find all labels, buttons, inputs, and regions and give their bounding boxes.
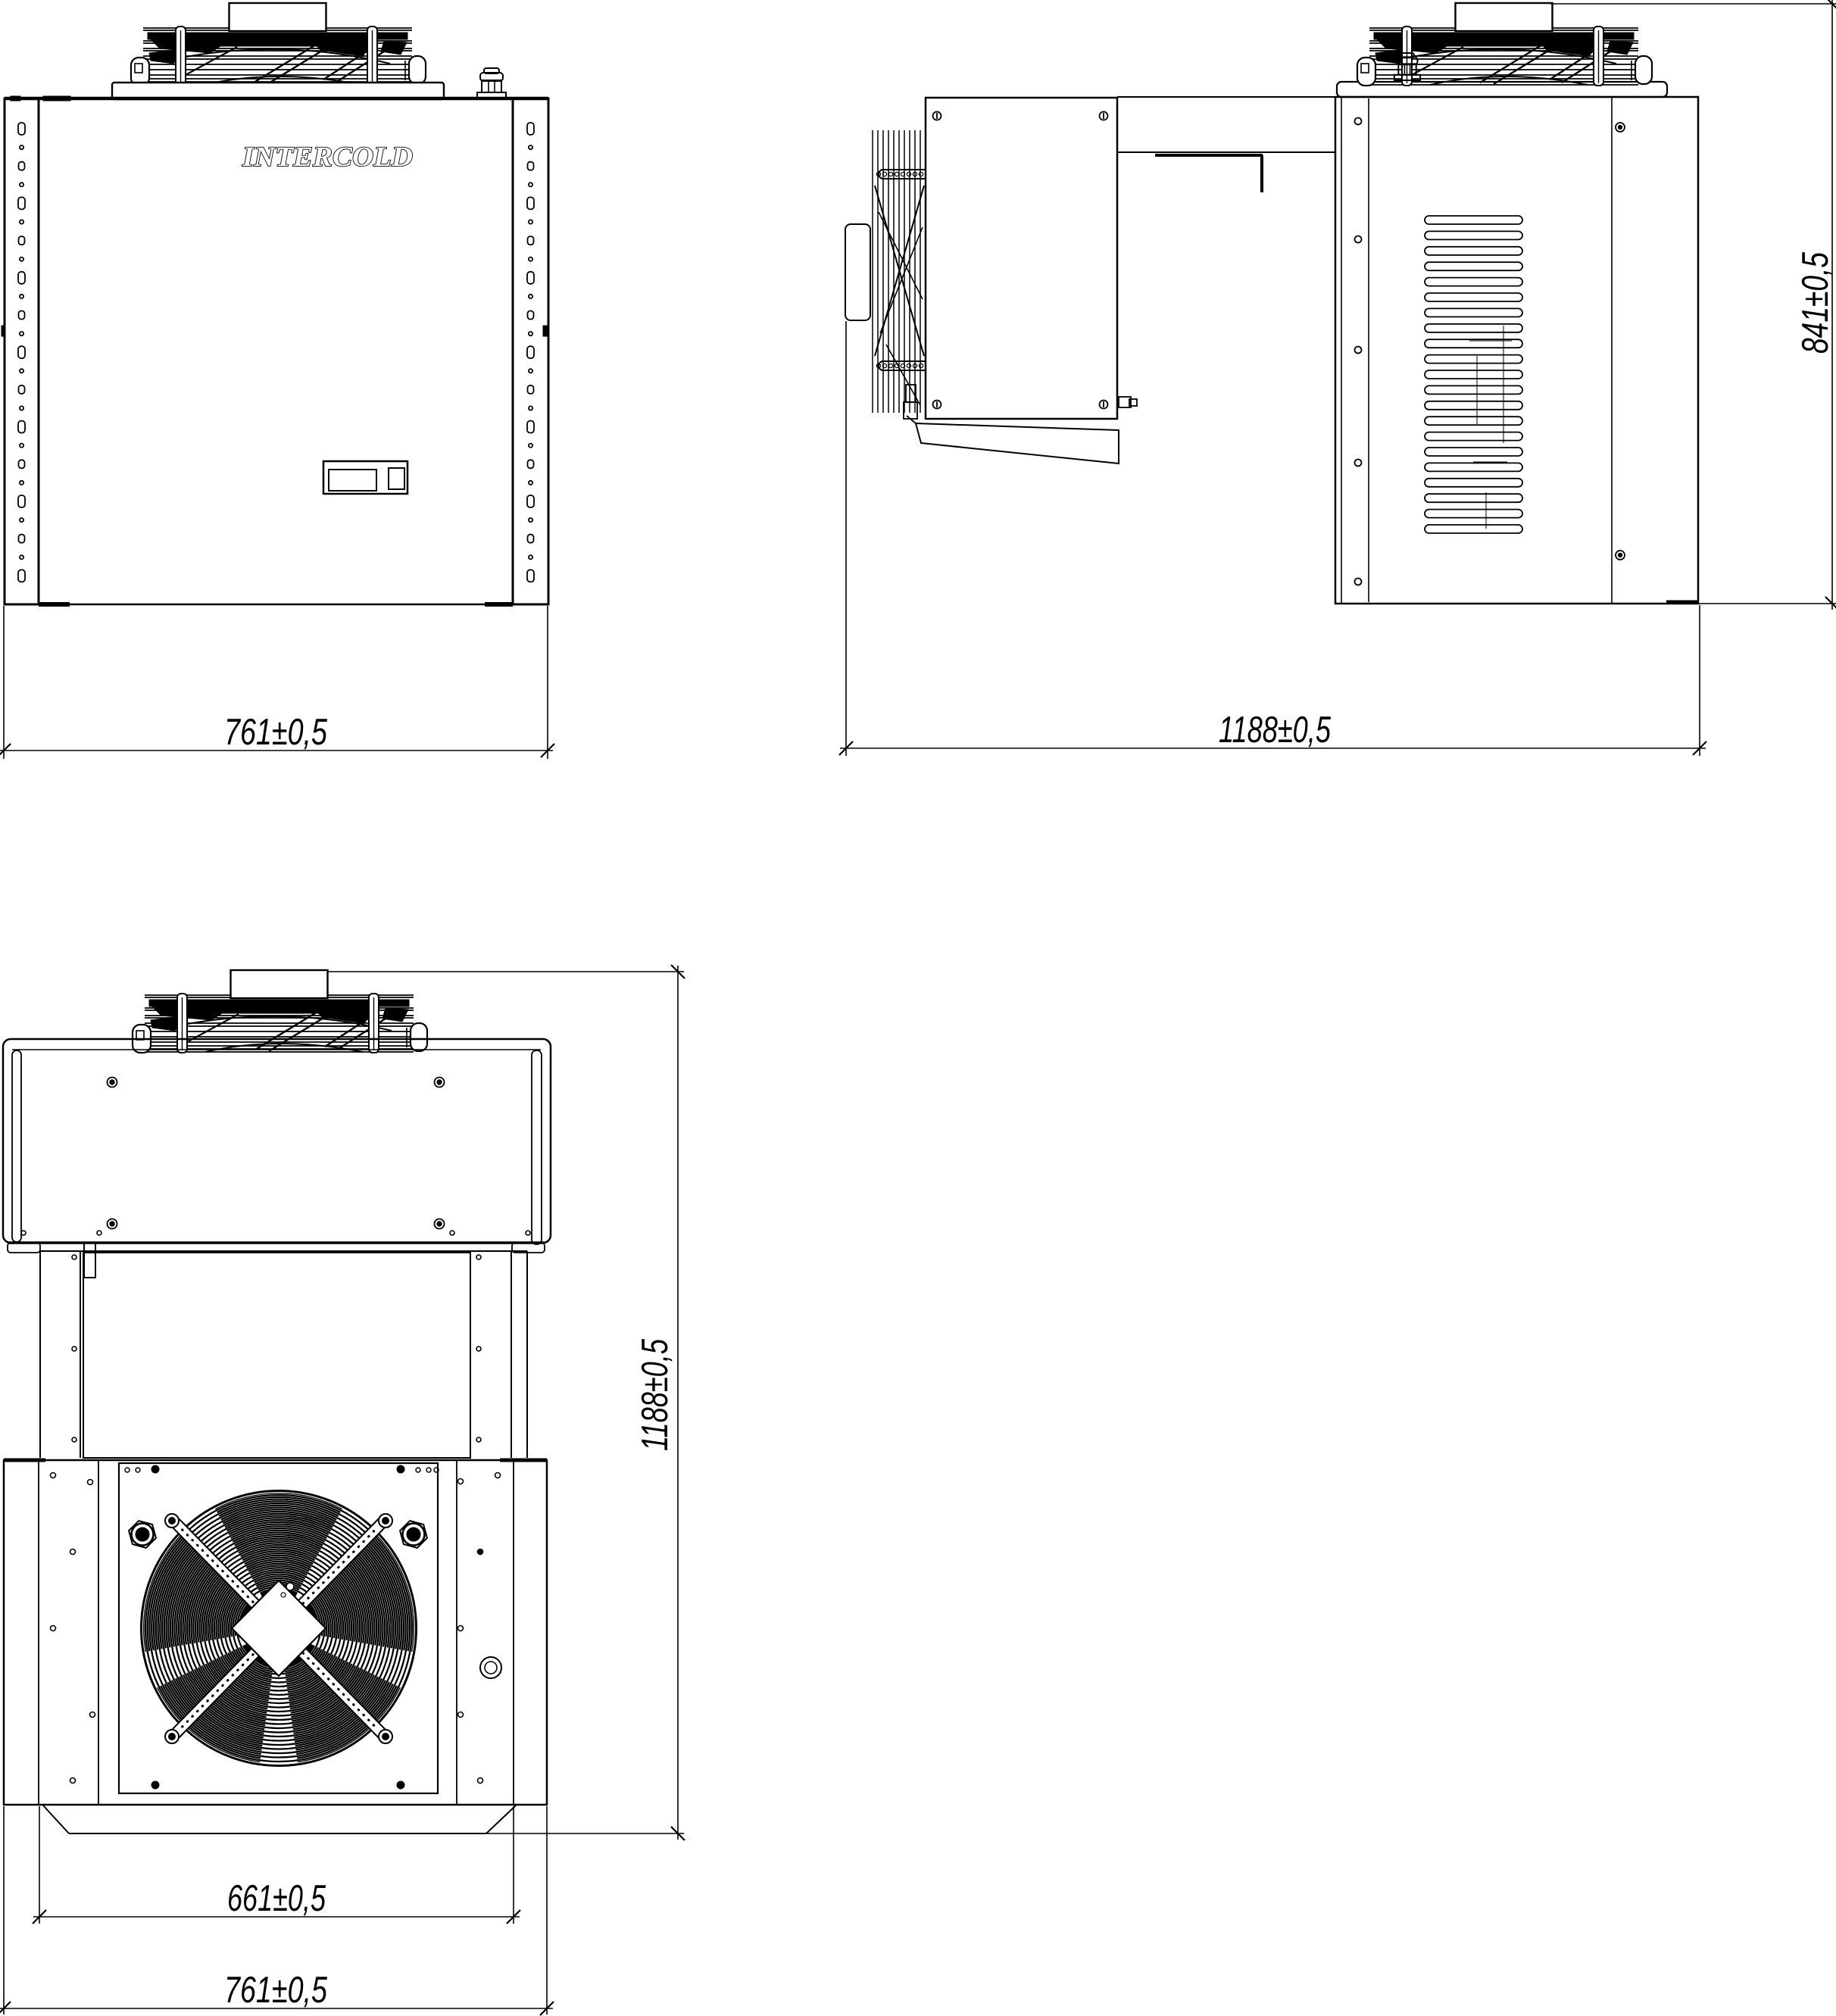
svg-text:761±0,5: 761±0,5 (224, 712, 328, 753)
svg-text:841±0,5: 841±0,5 (1795, 251, 1836, 354)
svg-text:761±0,5: 761±0,5 (224, 1970, 328, 2011)
svg-text:661±0,5: 661±0,5 (227, 1878, 326, 1919)
svg-text:INTERCOLD: INTERCOLD (242, 142, 413, 173)
svg-text:1188±0,5: 1188±0,5 (1219, 710, 1332, 751)
svg-text:1188±0,5: 1188±0,5 (635, 1338, 676, 1451)
